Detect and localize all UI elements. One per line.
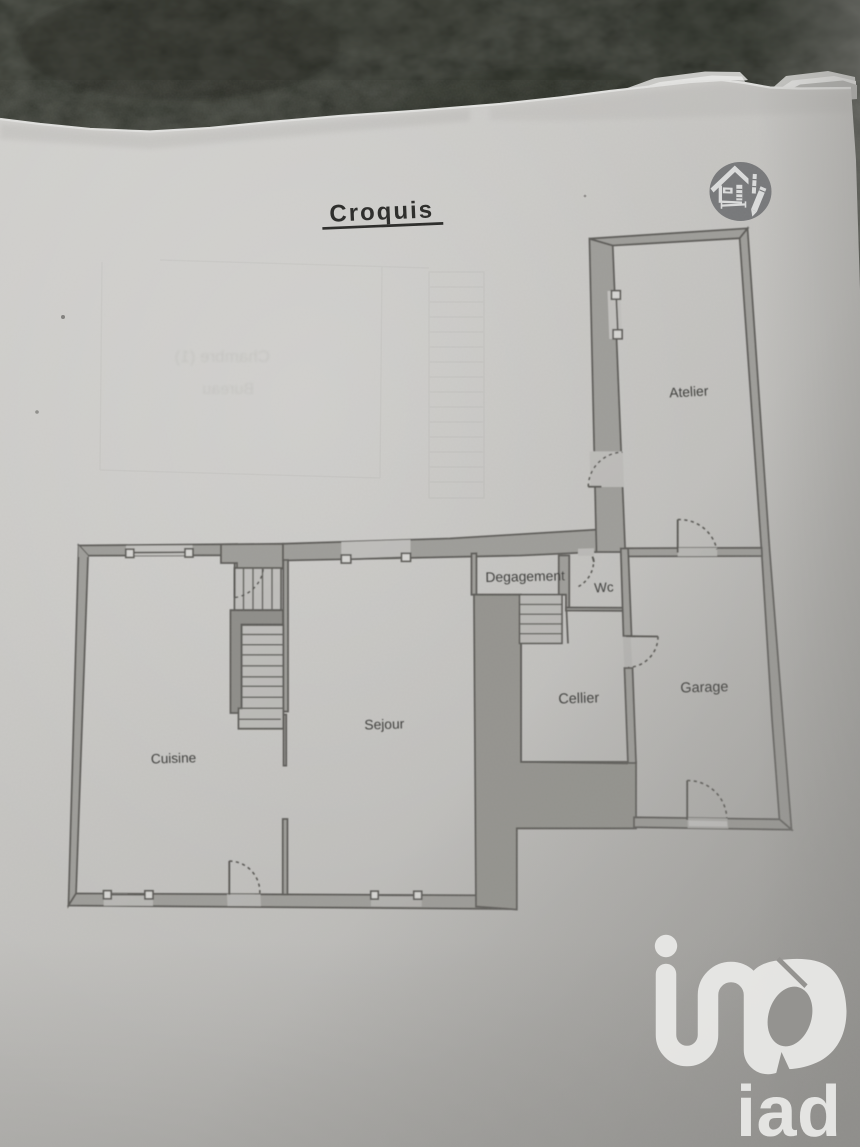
svg-text:iad: iad bbox=[736, 1072, 842, 1147]
